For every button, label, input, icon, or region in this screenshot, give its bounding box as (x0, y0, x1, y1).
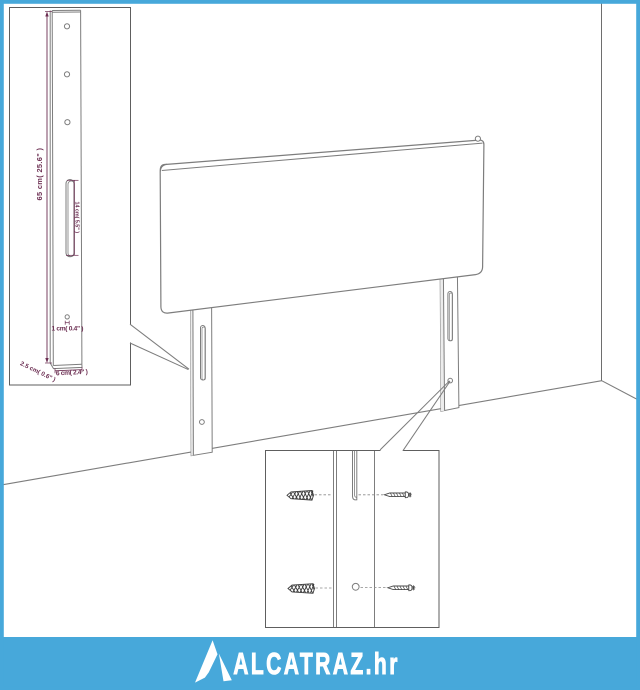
svg-text:1 cm( 0.4" ): 1 cm( 0.4" ) (52, 326, 84, 333)
svg-text:65 cm( 25.6" ): 65 cm( 25.6" ) (35, 147, 44, 200)
svg-text:ALCATRAZ.hr: ALCATRAZ.hr (233, 646, 400, 681)
svg-text:14 cm( 5.5" ): 14 cm( 5.5" ) (74, 202, 80, 234)
